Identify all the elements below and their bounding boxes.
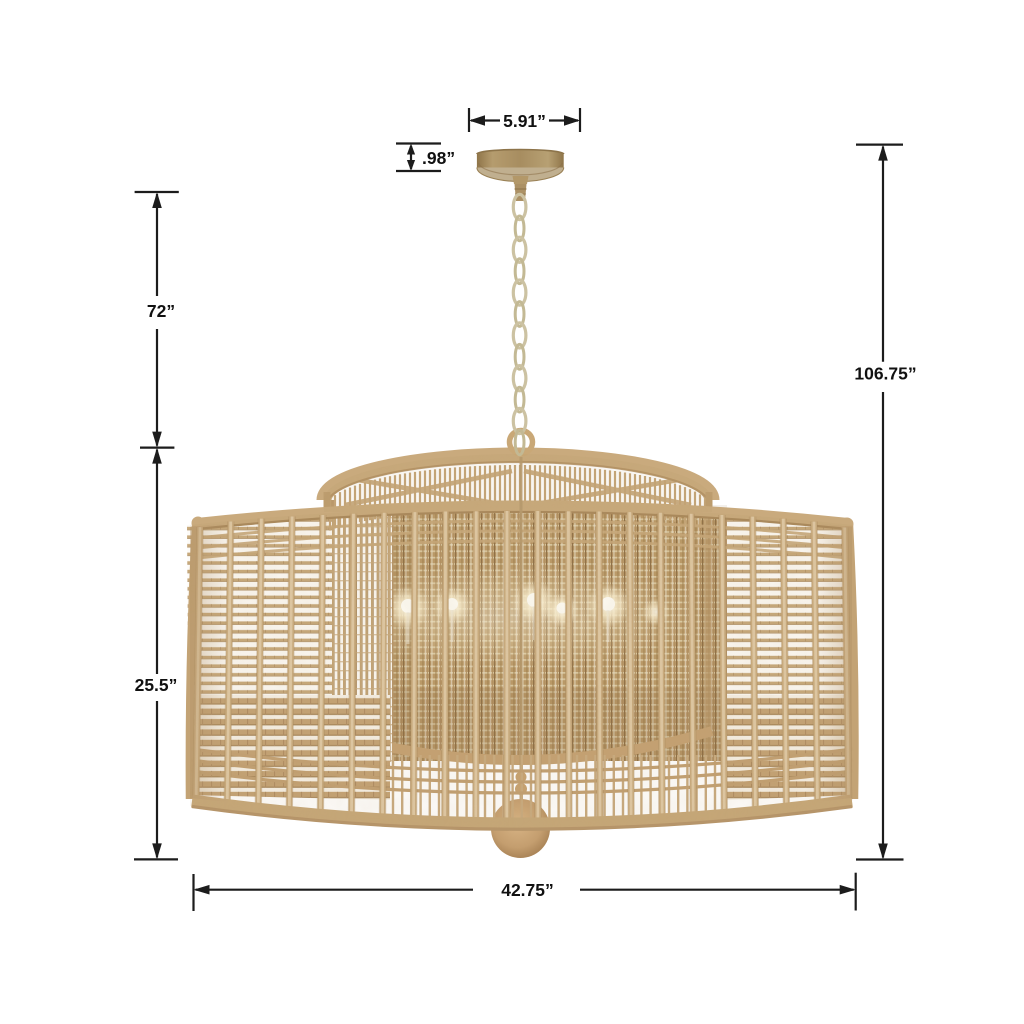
svg-text:72”: 72” [147, 301, 175, 321]
svg-text:25.5”: 25.5” [135, 675, 178, 695]
svg-text:5.91”: 5.91” [503, 111, 546, 131]
svg-text:42.75”: 42.75” [501, 880, 554, 900]
svg-text:.98”: .98” [422, 148, 455, 168]
svg-text:106.75”: 106.75” [854, 363, 916, 383]
